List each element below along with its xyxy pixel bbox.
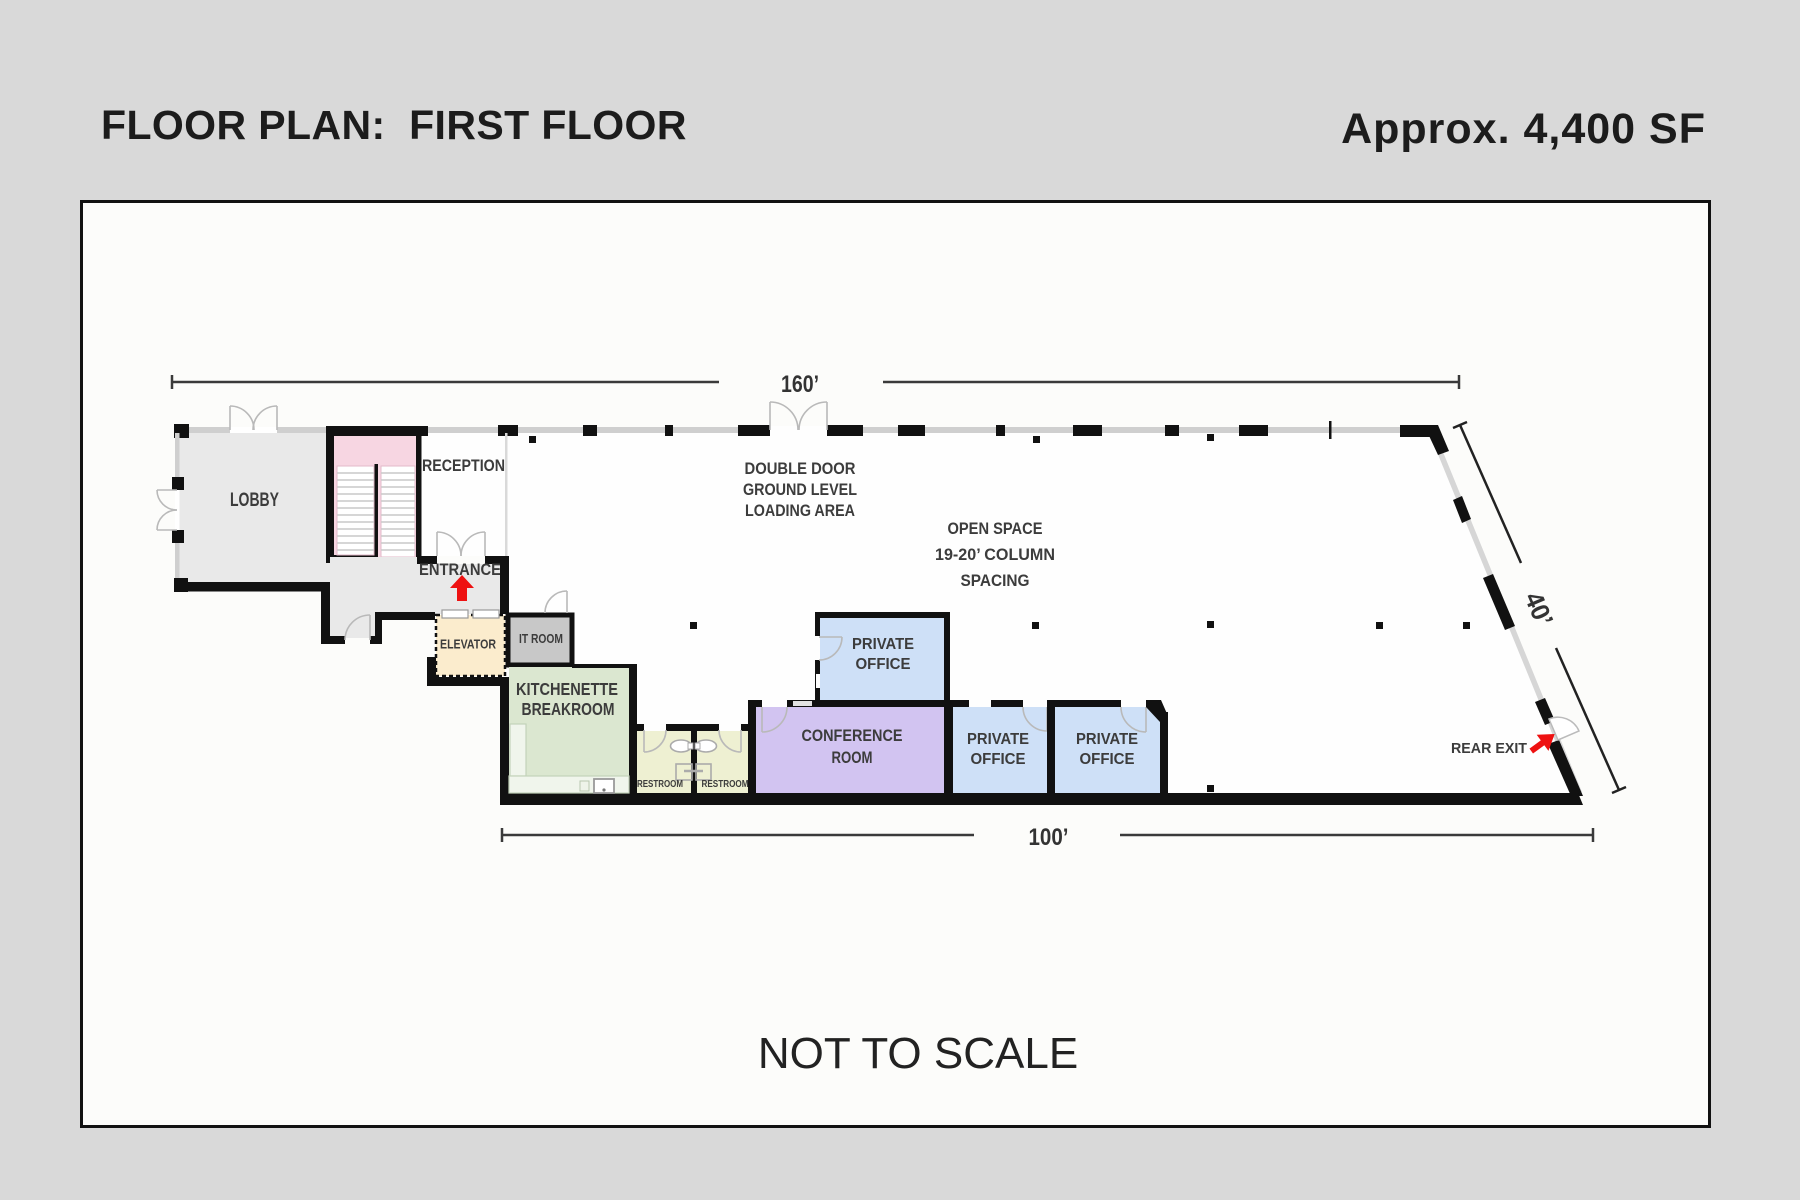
svg-text:PRIVATE: PRIVATE <box>967 731 1029 748</box>
svg-text:GROUND LEVEL: GROUND LEVEL <box>743 480 857 499</box>
svg-text:RESTROOM: RESTROOM <box>637 779 683 790</box>
svg-text:BREAKROOM: BREAKROOM <box>522 699 615 719</box>
svg-text:RESTROOM: RESTROOM <box>702 779 749 790</box>
svg-text:OPEN SPACE: OPEN SPACE <box>948 520 1043 538</box>
svg-text:CONFERENCE: CONFERENCE <box>802 727 903 745</box>
svg-text:KITCHENETTE: KITCHENETTE <box>516 679 618 699</box>
svg-text:19-20’ COLUMN: 19-20’ COLUMN <box>935 546 1055 564</box>
svg-text:ENTRANCE: ENTRANCE <box>419 560 501 579</box>
svg-text:REAR EXIT: REAR EXIT <box>1451 740 1527 757</box>
svg-text:PRIVATE: PRIVATE <box>1076 731 1138 748</box>
svg-text:RECEPTION: RECEPTION <box>422 456 505 475</box>
svg-text:OFFICE: OFFICE <box>1080 751 1135 768</box>
svg-text:PRIVATE: PRIVATE <box>852 636 914 653</box>
svg-text:ROOM: ROOM <box>832 749 873 767</box>
svg-text:FLOOR PLAN: FIRST FLOOR: FLOOR PLAN: FIRST FLOOR <box>101 102 687 148</box>
svg-text:DOUBLE DOOR: DOUBLE DOOR <box>745 459 856 478</box>
svg-text:ELEVATOR: ELEVATOR <box>440 637 496 652</box>
svg-text:IT ROOM: IT ROOM <box>519 631 563 646</box>
svg-text:100’: 100’ <box>1029 824 1069 851</box>
svg-text:SPACING: SPACING <box>961 572 1030 590</box>
svg-text:OFFICE: OFFICE <box>971 751 1026 768</box>
svg-text:Approx. 4,400 SF: Approx. 4,400 SF <box>1341 105 1706 153</box>
svg-text:OFFICE: OFFICE <box>856 656 911 673</box>
svg-text:LOADING AREA: LOADING AREA <box>745 501 855 520</box>
svg-text:LOBBY: LOBBY <box>230 490 279 511</box>
svg-text:NOT TO SCALE: NOT TO SCALE <box>758 1029 1078 1078</box>
svg-text:160’: 160’ <box>781 371 819 398</box>
